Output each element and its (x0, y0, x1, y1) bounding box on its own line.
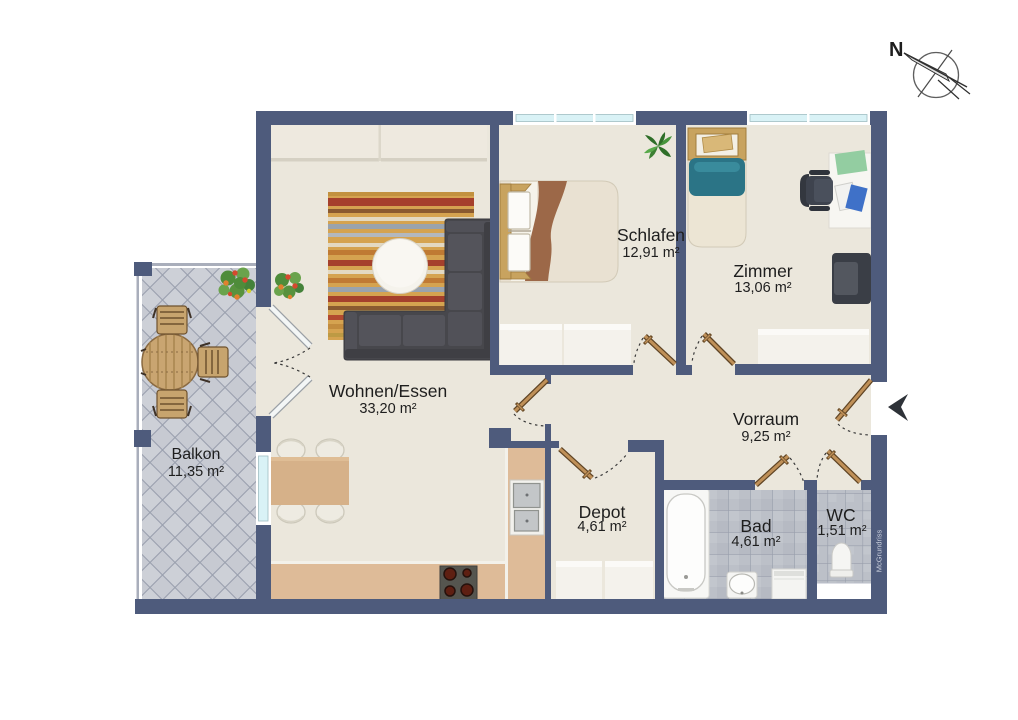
svg-text:1,51 m²: 1,51 m² (817, 523, 866, 539)
svg-text:4,61 m²: 4,61 m² (731, 534, 780, 550)
svg-text:McGrundriss: McGrundriss (875, 530, 884, 573)
svg-text:9,25 m²: 9,25 m² (741, 429, 790, 445)
svg-text:12,91 m²: 12,91 m² (622, 245, 679, 261)
svg-text:Schlafen: Schlafen (617, 225, 685, 245)
svg-text:N: N (889, 39, 903, 61)
svg-text:WC: WC (826, 505, 855, 525)
svg-text:Bad: Bad (740, 516, 771, 536)
svg-text:33,20 m²: 33,20 m² (359, 401, 416, 417)
svg-text:Balkon: Balkon (172, 446, 221, 463)
svg-text:Wohnen/Essen: Wohnen/Essen (329, 381, 447, 401)
svg-text:13,06 m²: 13,06 m² (734, 280, 791, 296)
svg-text:4,61 m²: 4,61 m² (577, 519, 626, 535)
svg-text:11,35 m²: 11,35 m² (168, 464, 224, 480)
svg-text:Zimmer: Zimmer (733, 261, 792, 281)
svg-text:Vorraum: Vorraum (733, 409, 799, 429)
